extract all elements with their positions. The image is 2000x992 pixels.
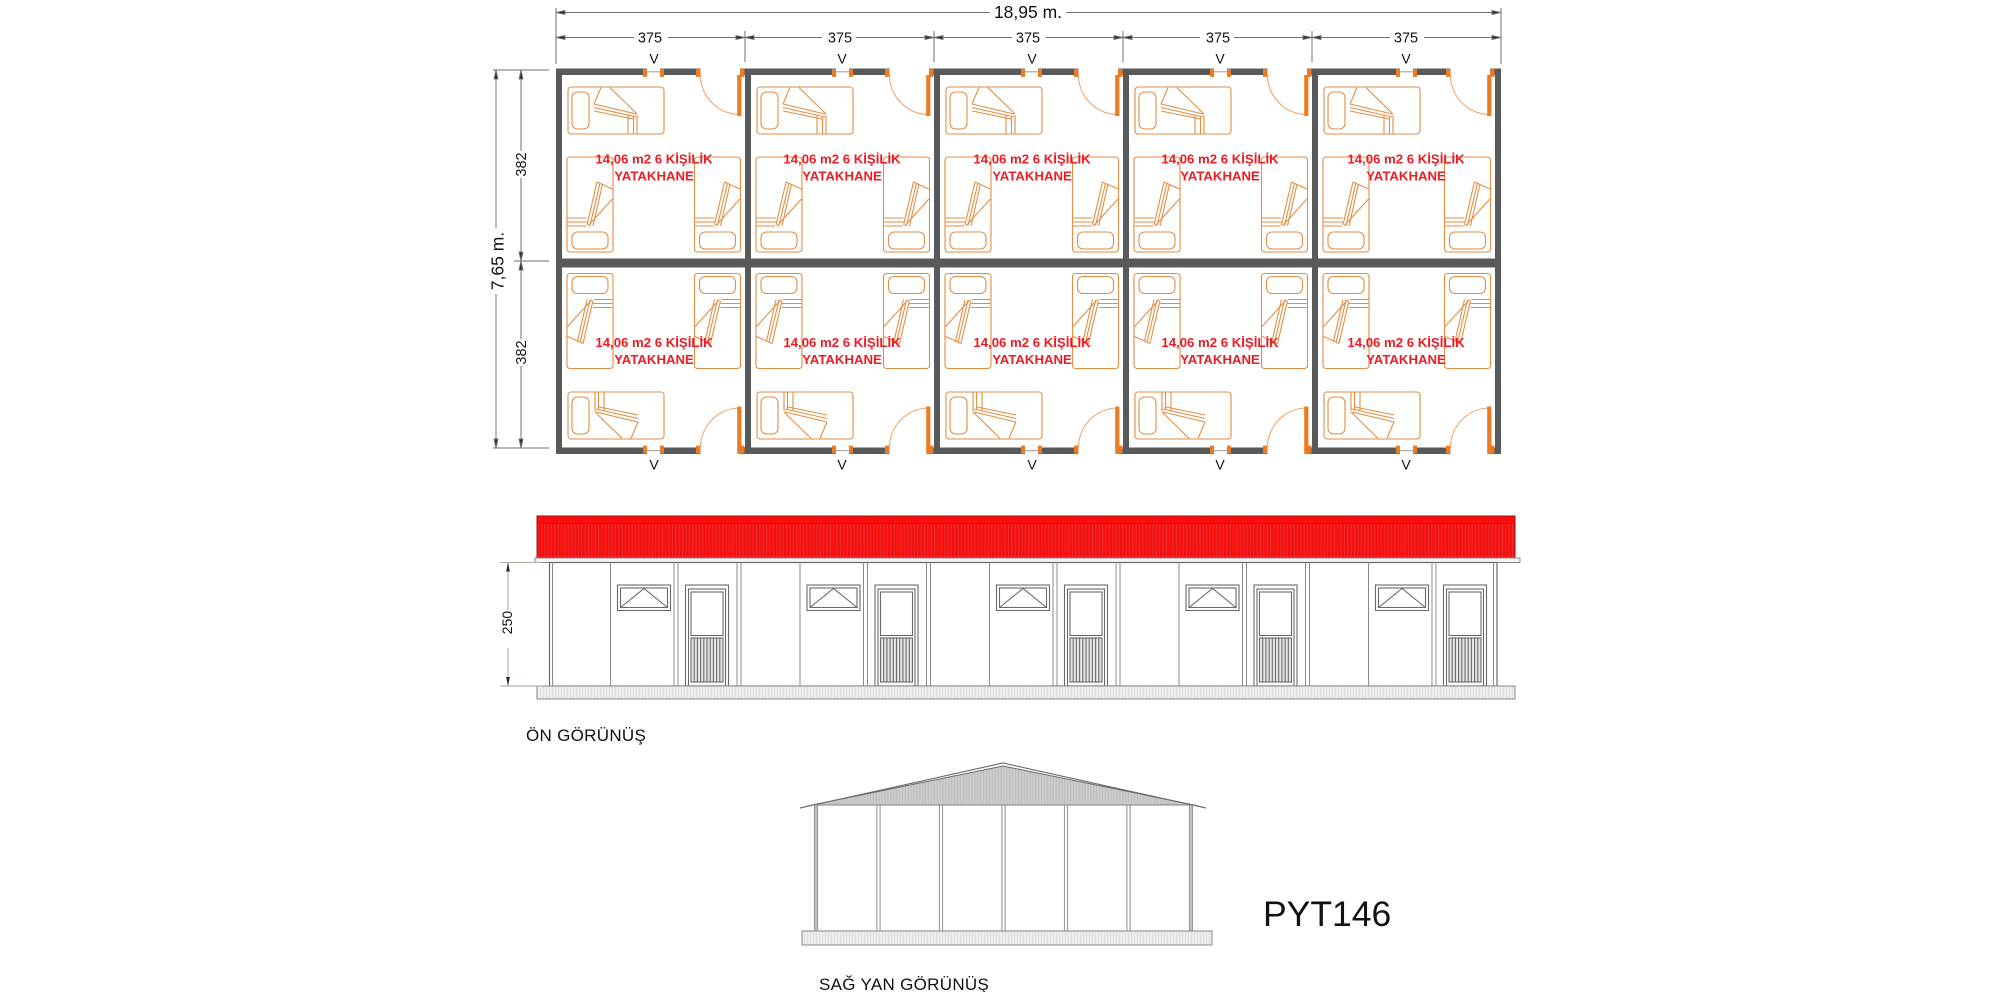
svg-text:14,06 m2 6 KİŞİLİK: 14,06 m2 6 KİŞİLİK bbox=[1347, 152, 1465, 167]
svg-text:375: 375 bbox=[1394, 31, 1418, 47]
svg-text:V: V bbox=[1215, 457, 1225, 473]
svg-text:V: V bbox=[649, 457, 659, 473]
svg-text:PYT146: PYT146 bbox=[1263, 894, 1391, 934]
svg-text:375: 375 bbox=[638, 31, 662, 47]
svg-text:382: 382 bbox=[514, 340, 530, 364]
svg-text:YATAKHANE: YATAKHANE bbox=[802, 169, 882, 184]
svg-text:375: 375 bbox=[1016, 31, 1040, 47]
svg-text:18,95 m.: 18,95 m. bbox=[994, 2, 1062, 22]
svg-text:14,06 m2 6 KİŞİLİK: 14,06 m2 6 KİŞİLİK bbox=[1347, 335, 1465, 350]
svg-text:YATAKHANE: YATAKHANE bbox=[1180, 352, 1260, 367]
svg-text:V: V bbox=[837, 457, 847, 473]
svg-text:V: V bbox=[649, 51, 659, 67]
svg-text:ÖN GÖRÜNÜŞ: ÖN GÖRÜNÜŞ bbox=[526, 726, 646, 745]
svg-text:375: 375 bbox=[828, 31, 852, 47]
svg-text:14,06 m2 6 KİŞİLİK: 14,06 m2 6 KİŞİLİK bbox=[783, 335, 901, 350]
svg-text:382: 382 bbox=[514, 152, 530, 176]
svg-text:V: V bbox=[1027, 457, 1037, 473]
svg-text:V: V bbox=[837, 51, 847, 67]
svg-text:14,06 m2 6 KİŞİLİK: 14,06 m2 6 KİŞİLİK bbox=[1161, 152, 1279, 167]
svg-text:V: V bbox=[1027, 51, 1037, 67]
svg-text:YATAKHANE: YATAKHANE bbox=[1180, 169, 1260, 184]
svg-text:14,06 m2 6 KİŞİLİK: 14,06 m2 6 KİŞİLİK bbox=[783, 152, 901, 167]
svg-text:YATAKHANE: YATAKHANE bbox=[614, 169, 694, 184]
svg-text:YATAKHANE: YATAKHANE bbox=[802, 352, 882, 367]
svg-text:14,06 m2 6 KİŞİLİK: 14,06 m2 6 KİŞİLİK bbox=[595, 335, 713, 350]
svg-text:SAĞ YAN GÖRÜNÜŞ: SAĞ YAN GÖRÜNÜŞ bbox=[819, 975, 989, 992]
svg-text:YATAKHANE: YATAKHANE bbox=[614, 352, 694, 367]
svg-text:14,06 m2 6 KİŞİLİK: 14,06 m2 6 KİŞİLİK bbox=[1161, 335, 1279, 350]
svg-text:YATAKHANE: YATAKHANE bbox=[1366, 169, 1446, 184]
svg-text:V: V bbox=[1215, 51, 1225, 67]
svg-text:250: 250 bbox=[499, 611, 515, 635]
svg-text:V: V bbox=[1401, 457, 1411, 473]
svg-text:YATAKHANE: YATAKHANE bbox=[992, 169, 1072, 184]
svg-text:V: V bbox=[1401, 51, 1411, 67]
svg-text:375: 375 bbox=[1206, 31, 1230, 47]
svg-text:7,65 m.: 7,65 m. bbox=[488, 232, 508, 290]
svg-text:14,06 m2 6 KİŞİLİK: 14,06 m2 6 KİŞİLİK bbox=[595, 152, 713, 167]
svg-text:14,06 m2 6 KİŞİLİK: 14,06 m2 6 KİŞİLİK bbox=[973, 152, 1091, 167]
svg-text:YATAKHANE: YATAKHANE bbox=[1366, 352, 1446, 367]
svg-text:14,06 m2 6 KİŞİLİK: 14,06 m2 6 KİŞİLİK bbox=[973, 335, 1091, 350]
svg-text:YATAKHANE: YATAKHANE bbox=[992, 352, 1072, 367]
